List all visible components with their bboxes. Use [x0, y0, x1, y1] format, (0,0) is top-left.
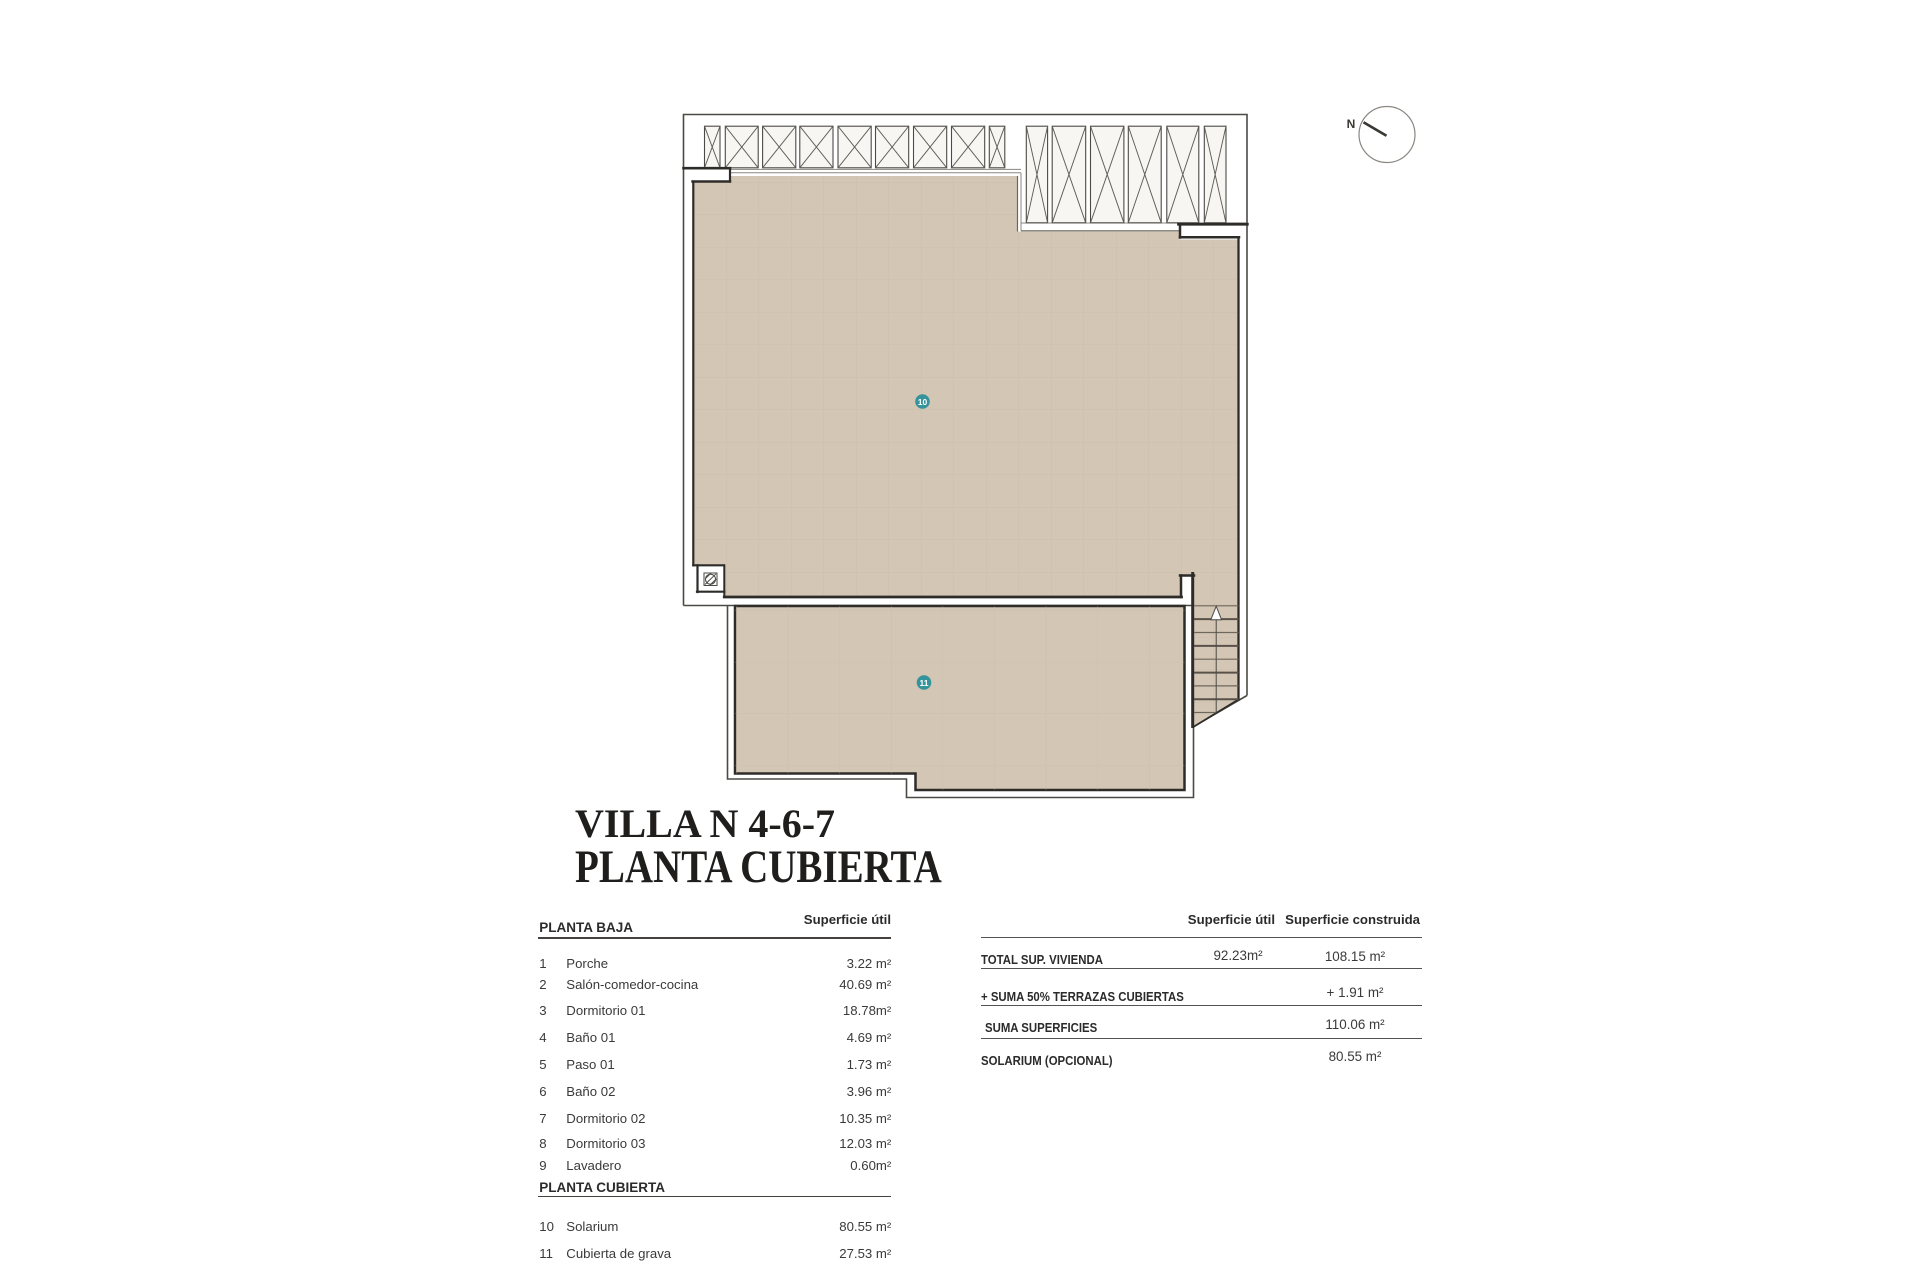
svg-text:11: 11 — [920, 678, 929, 688]
svg-text:N: N — [1347, 117, 1356, 131]
svg-text:10: 10 — [918, 397, 928, 407]
